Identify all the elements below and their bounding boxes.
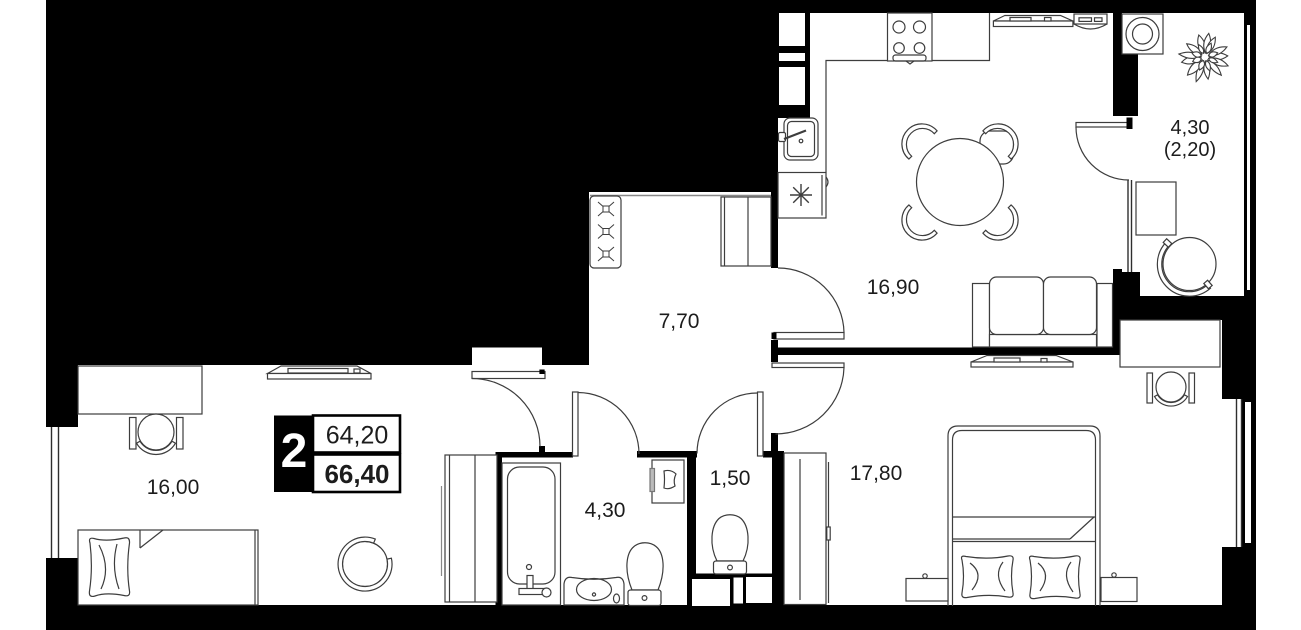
svg-text:17,80: 17,80 xyxy=(850,462,903,485)
svg-text:7,70: 7,70 xyxy=(659,310,700,333)
svg-text:66,40: 66,40 xyxy=(324,459,389,489)
svg-text:(2,20): (2,20) xyxy=(1164,139,1216,161)
svg-text:4,30: 4,30 xyxy=(585,499,626,522)
svg-text:64,20: 64,20 xyxy=(326,422,389,450)
svg-text:1,50: 1,50 xyxy=(710,467,751,490)
svg-text:16,90: 16,90 xyxy=(867,276,920,299)
svg-text:16,00: 16,00 xyxy=(147,476,200,499)
svg-text:4,30: 4,30 xyxy=(1171,117,1210,139)
svg-text:2: 2 xyxy=(281,425,308,478)
